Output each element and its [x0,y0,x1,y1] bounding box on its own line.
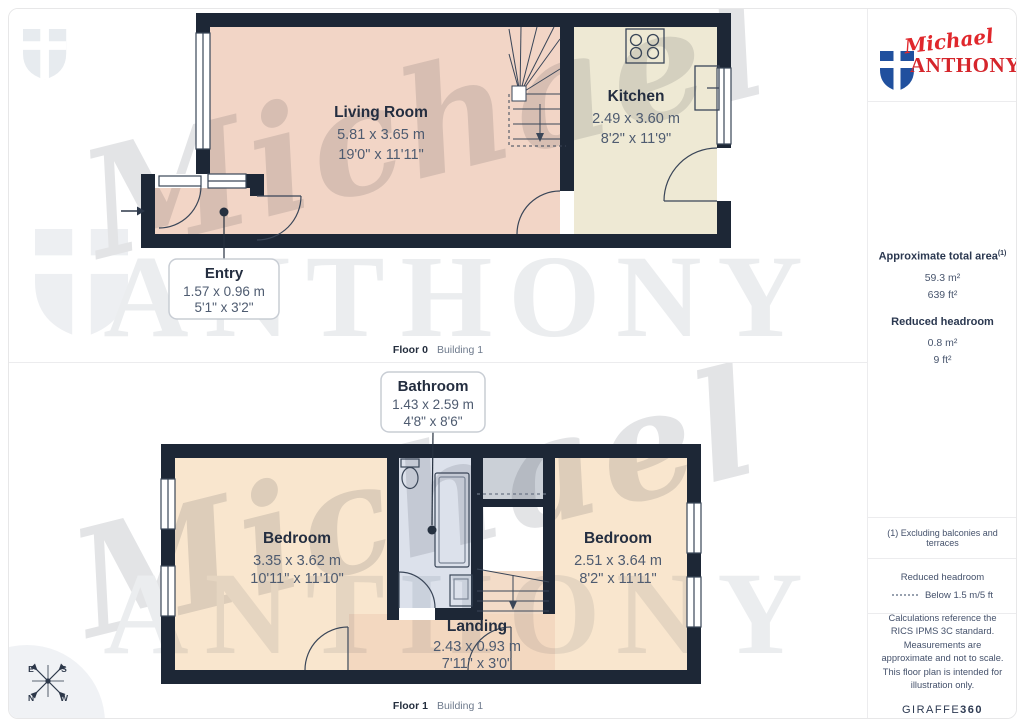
svg-text:1.57 x 0.96 m: 1.57 x 0.96 m [183,284,265,299]
total-area-imperial: 639 ft² [928,287,958,304]
svg-text:S: S [61,664,67,674]
building-label: Building 1 [437,700,483,712]
svg-text:2.43 x 0.93 m: 2.43 x 0.93 m [433,639,521,655]
bedroom-right-label: Bedroom 2.51 x 3.64 m 8'2" x 11'11" [574,530,662,587]
svg-text:Bathroom: Bathroom [398,378,469,395]
svg-text:19'0" x 11'11": 19'0" x 11'11" [338,147,423,163]
svg-text:5'1" x 3'2": 5'1" x 3'2" [194,300,253,315]
reduced-headroom-legend: Reduced headroom Below 1.5 m/5 ft [868,559,1017,614]
svg-text:Living Room: Living Room [334,104,428,121]
dashed-line-sample [892,594,918,596]
total-area-heading: Approximate total area(1) [879,250,1007,263]
floor0-plan: Michael ANTHONY [9,9,867,362]
floor1-panel: Michael ANTHONY [9,363,867,718]
disclaimer-text: Calculations reference the RICS IPMS 3C … [880,612,1005,693]
svg-text:2.49 x 3.60 m: 2.49 x 3.60 m [592,111,680,127]
floor0-caption: Floor 0Building 1 [9,344,867,356]
floorplan-card: Michael ANTHONY [8,8,1017,719]
reduced-headroom-imperial: 9 ft² [933,352,951,369]
svg-text:8'2" x 11'9": 8'2" x 11'9" [601,131,671,147]
floor1-caption: Floor 1Building 1 [9,700,867,712]
legend-title: Reduced headroom [901,572,984,583]
living-room-label: Living Room 5.81 x 3.65 m 19'0" x 11'11" [334,104,428,163]
svg-text:4'8" x 8'6": 4'8" x 8'6" [403,414,462,429]
svg-text:8'2" x 11'11": 8'2" x 11'11" [579,571,656,587]
svg-text:7'11" x 3'0": 7'11" x 3'0" [442,656,512,672]
svg-text:Landing: Landing [447,618,507,635]
logo-serif-text: ANTHONY [910,53,1017,78]
svg-text:Entry: Entry [205,265,244,282]
area-summary: Approximate total area(1) 59.3 m² 639 ft… [868,102,1017,518]
bedroom-left-label: Bedroom 3.35 x 3.62 m 10'11" x 11'10" [250,530,344,587]
floor-label: Floor 1 [393,700,428,712]
reduced-headroom-metric: 0.8 m² [928,335,958,352]
footnote-ref: (1) [998,250,1007,257]
plans-column: Michael ANTHONY [9,9,867,718]
provider-logo: GIRAFFE360 [902,703,983,719]
disclaimer: Calculations reference the RICS IPMS 3C … [868,614,1017,717]
svg-text:2.51 x 3.64 m: 2.51 x 3.64 m [574,553,662,569]
floor0-panel: Michael ANTHONY [9,9,867,363]
svg-text:Bedroom: Bedroom [584,530,652,547]
svg-text:Bedroom: Bedroom [263,530,331,547]
floor1-plan: Michael ANTHONY [9,363,867,718]
floor-label: Floor 0 [393,344,428,356]
svg-text:1.43 x 2.59 m: 1.43 x 2.59 m [392,397,474,412]
svg-text:5.81 x 3.65 m: 5.81 x 3.65 m [337,127,425,143]
svg-text:10'11" x 11'10": 10'11" x 11'10" [250,571,344,587]
shield-watermark-icon [23,29,66,79]
reduced-headroom-heading: Reduced headroom [891,316,994,328]
svg-text:3.35 x 3.62 m: 3.35 x 3.62 m [253,553,341,569]
floorplan-page: Michael ANTHONY [0,0,1024,725]
total-area-metric: 59.3 m² [925,270,961,287]
legend-dash-label: Below 1.5 m/5 ft [925,590,993,601]
svg-text:Kitchen: Kitchen [608,88,665,105]
agency-logo: Michael ANTHONY [868,9,1017,102]
footnote: (1) Excluding balconies and terraces [868,518,1017,559]
svg-text:E: E [28,664,34,674]
building-label: Building 1 [437,344,483,356]
info-sidebar: Michael ANTHONY Approximate total area(1… [867,9,1017,718]
